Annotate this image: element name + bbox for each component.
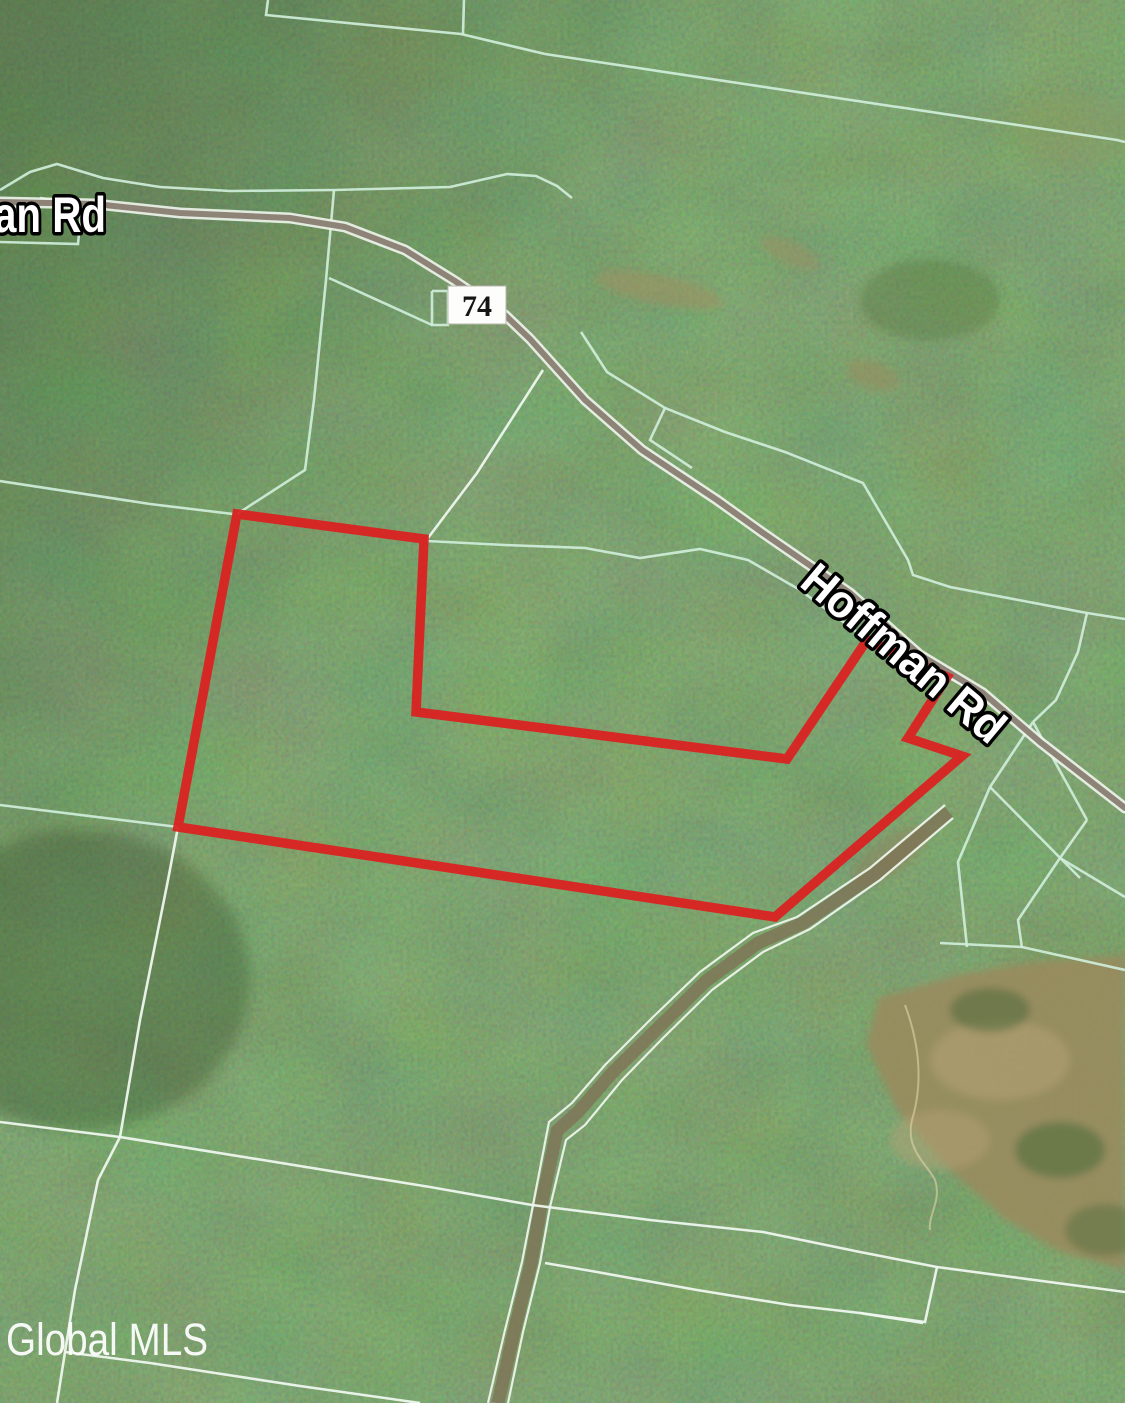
road-label-partial: an Rd — [0, 187, 106, 243]
parcel-line — [463, 0, 464, 34]
route-badge-number: 74 — [462, 290, 492, 323]
watermark: Global MLS — [6, 1314, 208, 1365]
route-badge: 74 — [448, 286, 506, 324]
map-canvas: 74 an Rd Hoffman Rd Global MLS — [0, 0, 1125, 1403]
satellite-map: 74 an Rd Hoffman Rd Global MLS — [0, 0, 1125, 1403]
